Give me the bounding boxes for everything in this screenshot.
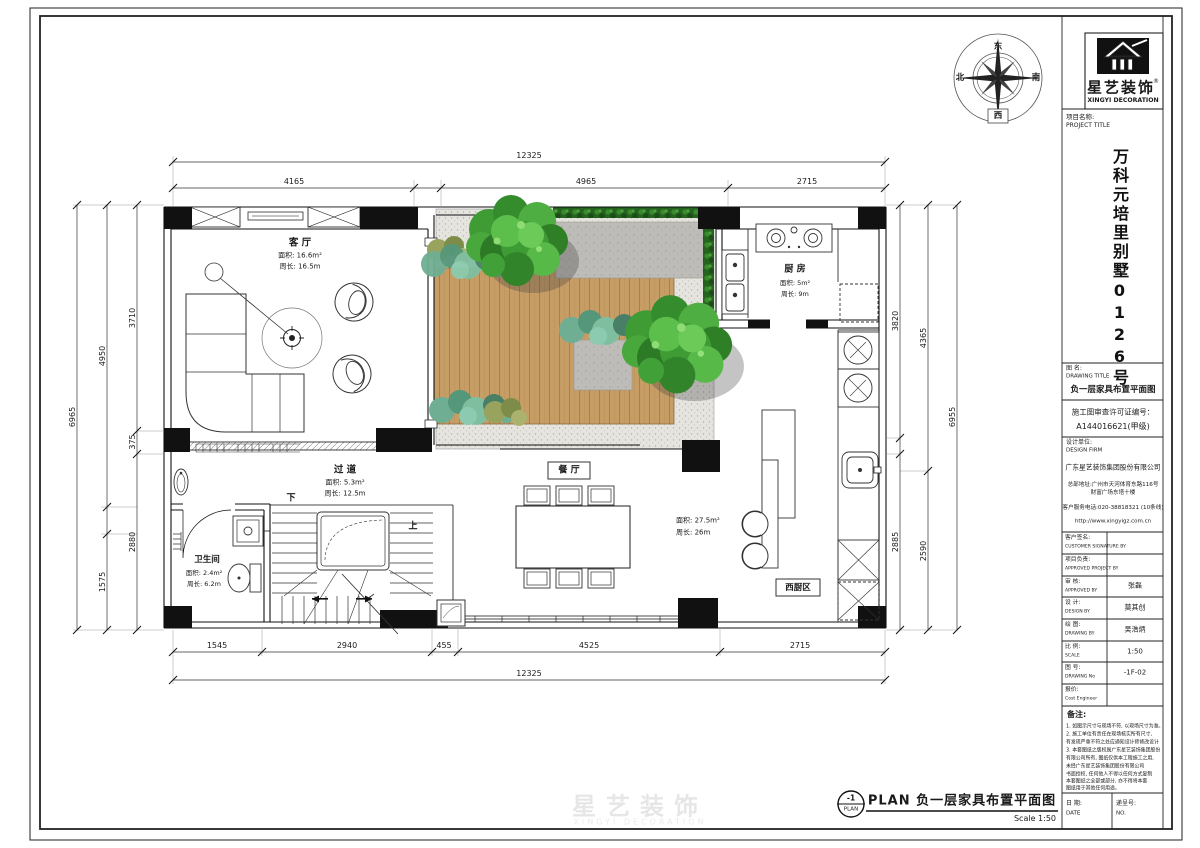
watermark-sub: XINGYI DECORATION xyxy=(573,818,706,827)
dim-bottom-3: 455 xyxy=(436,642,451,650)
sink-basin xyxy=(726,284,744,311)
dim-left-inner-2: 375 xyxy=(129,434,137,449)
dining-perimeter: 周长: 26m xyxy=(676,530,710,537)
dim-top-2: 4965 xyxy=(576,178,596,186)
plan-scale: Scale 1:50 xyxy=(1014,815,1056,823)
shower-icon xyxy=(173,532,181,551)
row-cost-label: 报价: xyxy=(1065,688,1079,694)
notes-line: 书面授权, 任何他人不得以任何方式复制 xyxy=(1066,773,1152,778)
stove-icon xyxy=(756,224,832,252)
firm-address: 总部地址:广州市天河体育东路116号 xyxy=(1068,483,1159,489)
permit-label: 施工图审查许可证编号： xyxy=(1072,408,1155,416)
basin-icon xyxy=(174,469,188,495)
row-approved-label: 审 核: xyxy=(1065,580,1080,586)
living-room-label: 客 厅 xyxy=(289,238,311,248)
dim-top-1: 4165 xyxy=(284,178,304,186)
row-drawing-no-label-en: DRAWING No xyxy=(1065,676,1095,681)
dim-left-total: 6965 xyxy=(69,407,77,427)
dim-bottom-total: 12325 xyxy=(516,670,541,678)
dim-right-mid-2: 2590 xyxy=(920,541,928,561)
firm-address-2: 财富广场东塔十楼 xyxy=(1091,491,1136,497)
sink-icon xyxy=(842,452,881,488)
compass-west: 西 xyxy=(994,112,1003,121)
notes-line: 有限公司所有, 图纸仅供本工程施工之用, xyxy=(1066,757,1154,762)
dim-bottom-4: 4525 xyxy=(579,642,599,650)
row-design-label-en: DESIGN BY xyxy=(1065,611,1090,616)
row-scale-value: 1:50 xyxy=(1127,649,1143,656)
hallway-perimeter: 周长: 12.5m xyxy=(325,491,366,498)
row-customer-label: 客户签名: xyxy=(1065,536,1090,542)
compass-north: 北 xyxy=(956,74,965,83)
design-firm-name: 广东星艺装饰集团股份有限公司 xyxy=(1065,465,1160,472)
compass-east: 东 xyxy=(994,43,1003,52)
dining-label: 餐 厅 xyxy=(558,467,579,476)
design-firm-label-en: DESIGN FIRM xyxy=(1066,448,1102,454)
living-room-area: 面积: 16.6m² xyxy=(278,253,322,260)
bathroom-area: 面积: 2.4m² xyxy=(186,570,223,577)
permit-number: A144016621(甲级) xyxy=(1076,423,1150,431)
plan-title: PLAN 负一层家具布置平面图 xyxy=(868,795,1056,808)
hallway-label: 过 道 xyxy=(334,465,356,475)
west-kitchen-label: 西厨区 xyxy=(785,584,811,593)
row-approved-label-en: APPROVED BY xyxy=(1065,590,1097,595)
drawing-title-label-en: DRAWING TITLE xyxy=(1066,374,1109,380)
dim-bottom-2: 2940 xyxy=(337,642,357,650)
design-firm-label: 设计单位: xyxy=(1066,440,1092,446)
kitchen-label: 厨 房 xyxy=(784,266,805,275)
living-room-furniture xyxy=(186,263,377,452)
dining-furniture xyxy=(516,486,630,588)
row-drawing-value: 吴浩炳 xyxy=(1125,627,1146,634)
dim-bottom-5: 2715 xyxy=(790,642,810,650)
watermark: 星艺装饰 xyxy=(572,787,708,822)
row-design-label: 设 计: xyxy=(1065,601,1080,607)
row-cost-label-en: Cost Engineer xyxy=(1065,698,1097,703)
no-label-en: NO. xyxy=(1116,811,1126,817)
fridge xyxy=(840,284,878,322)
row-scale-label: 比 例: xyxy=(1065,645,1080,651)
notes-line: 本套图纸之全部或部分, 亦不得将本套 xyxy=(1066,780,1147,785)
concrete-pad xyxy=(556,222,706,278)
bathroom-label: 卫生间 xyxy=(194,556,220,565)
ceiling-light-icon xyxy=(280,326,304,350)
notes-title: 备注: xyxy=(1067,711,1086,719)
row-drawing-no-label: 图 号: xyxy=(1065,666,1080,672)
notes-line: 1. 如图示尺寸与现场不符, 以现场尺寸为准。 xyxy=(1066,725,1163,730)
dim-left-inner-3: 2880 xyxy=(129,532,137,552)
dim-top-total: 12325 xyxy=(516,152,541,160)
dim-right-inner-1: 3820 xyxy=(892,311,900,331)
toilet-icon xyxy=(228,564,261,592)
hallway-area: 面积: 5.3m² xyxy=(325,480,364,487)
right-counter xyxy=(838,330,881,622)
brand-name-en: XINGYI DECORATION xyxy=(1087,98,1158,104)
row-drawing-label: 绘 图: xyxy=(1065,623,1080,629)
project-title-label: 项目名称: xyxy=(1066,114,1094,121)
website: http://www.xingyigz.com.cn xyxy=(1075,519,1151,525)
brand-reg-mark: ® xyxy=(1153,79,1159,85)
row-project-lead-label-en: APPROVED PROJECT BY xyxy=(1065,568,1118,573)
row-project-lead-label: 项目负责: xyxy=(1065,558,1090,564)
row-drawing-no-value: -1F-02 xyxy=(1124,670,1146,677)
dining-table xyxy=(516,506,630,568)
living-room-perimeter: 周长: 16.5m xyxy=(280,264,321,271)
dim-right-total: 6955 xyxy=(949,407,957,427)
footer-tag-number: -1 xyxy=(847,794,855,802)
hedge xyxy=(553,207,714,218)
stair-down-label: 下 xyxy=(286,495,295,504)
notes-line: 图纸用于其他任何用途。 xyxy=(1066,787,1120,792)
dim-bottom-1: 1545 xyxy=(207,642,227,650)
kitchen-area: 面积: 5m² xyxy=(780,280,810,287)
notes-line: 未经广东星艺装饰集团股份有限公司 xyxy=(1066,765,1144,770)
row-design-value: 莫其创 xyxy=(1125,605,1146,612)
project-title-label-en: PROJECT TITLE xyxy=(1066,123,1110,129)
bathroom-perimeter: 周长: 6.2m xyxy=(187,581,221,588)
notes-line: 2. 施工单位有责任在现场核实所有尺寸, xyxy=(1066,733,1152,738)
date-label-en: DATE xyxy=(1066,811,1080,817)
xingyi-logo-icon xyxy=(1097,38,1149,74)
notes-line: 有发现严重不符之处应通知设计师修改设计 xyxy=(1066,741,1159,746)
dim-top-3: 2715 xyxy=(797,178,817,186)
project-name: 万科元培里别墅0126号 xyxy=(1107,148,1131,388)
drawing-title: 负一层家具布置平面图 xyxy=(1070,386,1155,395)
stair-up-label: 上 xyxy=(408,523,417,532)
notes-line: 3. 本套图纸之版权属广东星艺装饰集团股份 xyxy=(1066,749,1160,754)
footer-tag-sub: PLAN xyxy=(844,807,858,813)
brand-name: 星艺装饰 xyxy=(1087,81,1155,96)
drawing-title-label: 图 名: xyxy=(1066,366,1082,372)
compass-south: 南 xyxy=(1032,74,1041,83)
row-approved-value: 张磊 xyxy=(1128,583,1142,590)
dim-left-mid-2: 1575 xyxy=(99,572,107,592)
sofa xyxy=(186,294,304,432)
row-customer-label-en: CUSTOMER SIGNATURE BY xyxy=(1065,546,1126,551)
plan-drawing xyxy=(0,0,1200,848)
date-label: 日 期: xyxy=(1066,801,1082,807)
row-drawing-label-en: DRAWING BY xyxy=(1065,633,1095,638)
sink-basin xyxy=(726,254,744,281)
drawing-sheet: 客 厅 面积: 16.6m² 周长: 16.5m 厨 房 面积: 5m² 周长:… xyxy=(0,0,1200,848)
service-phone: 客户服务电话:020-38818321 (10条线) xyxy=(1062,506,1163,512)
dim-right-mid-1: 4365 xyxy=(920,328,928,348)
dim-left-inner-1: 3710 xyxy=(129,308,137,328)
row-scale-label-en: SCALE xyxy=(1065,655,1080,660)
no-label: 递呈号: xyxy=(1116,801,1136,807)
dim-right-inner-2: 2885 xyxy=(892,532,900,552)
dim-left-mid-1: 4950 xyxy=(99,346,107,366)
island xyxy=(742,410,795,569)
kitchen-perimeter: 周长: 9m xyxy=(781,291,809,298)
dining-area: 面积: 27.5m² xyxy=(676,518,720,525)
